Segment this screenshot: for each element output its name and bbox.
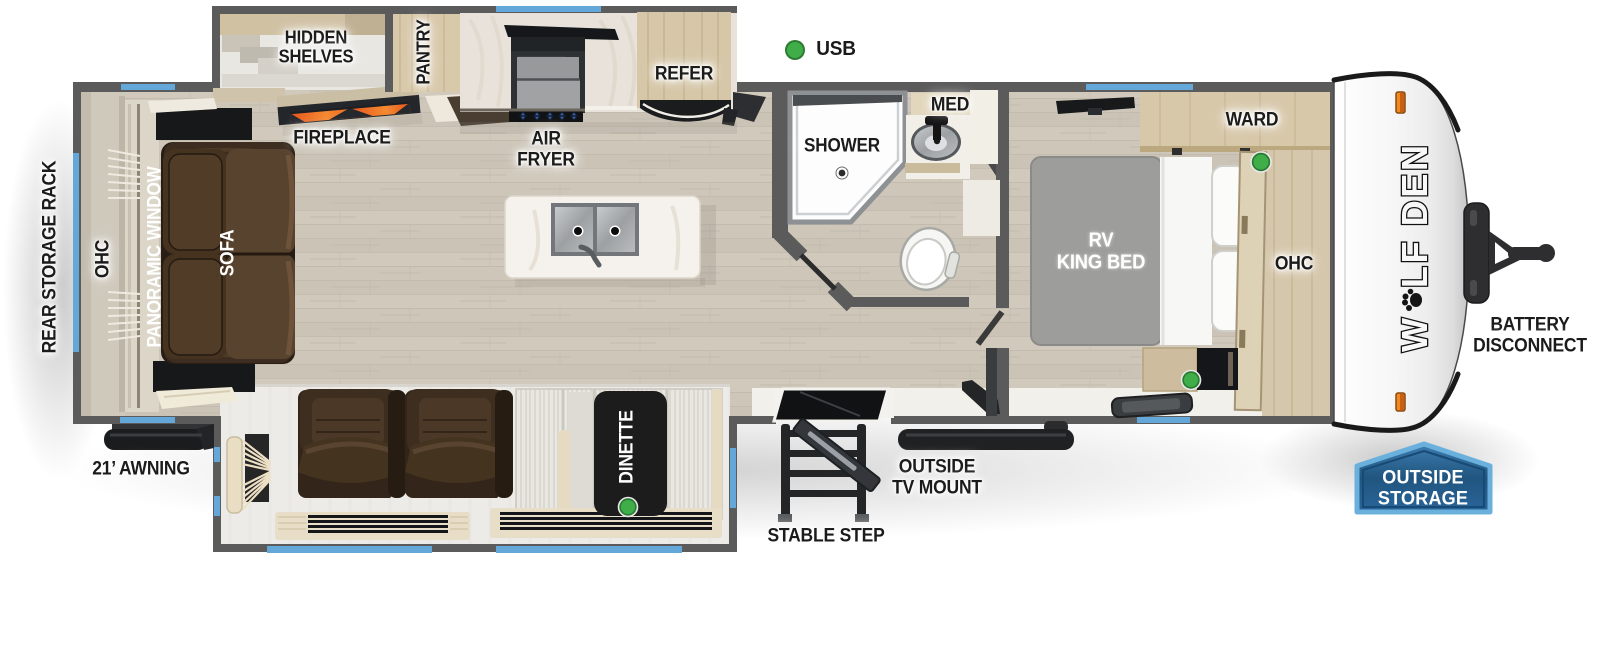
svg-text:LF DEN: LF DEN (1394, 144, 1435, 288)
svg-text:W: W (1394, 317, 1435, 352)
